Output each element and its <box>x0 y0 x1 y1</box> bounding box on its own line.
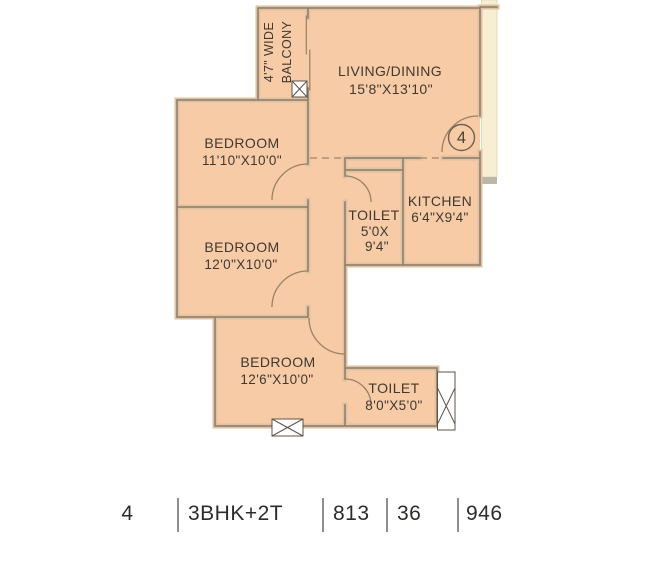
balcony-label-line1: 4'7" WIDE <box>262 22 276 82</box>
summary-unit-type: 3BHK+2T <box>188 494 283 534</box>
summary-value-2: 36 <box>397 494 421 534</box>
kitchen-label: KITCHEN <box>408 193 472 209</box>
summary-row: 4 3BHK+2T 813 36 946 <box>0 494 645 534</box>
bedroom-bottom-dims: 12'6"X10'0" <box>240 372 313 387</box>
summary-unit-number: 4 <box>105 494 150 534</box>
summary-divider <box>177 498 179 532</box>
summary-divider <box>386 498 388 532</box>
bedroom-top-label: BEDROOM <box>204 135 279 151</box>
bedroom-middle-dims: 12'0"X10'0" <box>204 257 277 272</box>
summary-divider <box>322 498 324 532</box>
bedroom-top-dims: 11'10"X10'0" <box>202 153 282 168</box>
kitchen-dims: 6'4"X9'4" <box>411 210 468 225</box>
balcony-label-line2: BALCONY <box>280 20 294 83</box>
bedroom-bottom-label: BEDROOM <box>240 354 315 370</box>
toilet-attached-label: TOILET <box>368 380 419 396</box>
toilet-common-dims-line1: 5'0X <box>361 224 389 239</box>
summary-value-3: 946 <box>466 494 503 534</box>
toilet-common-dims-line2: 9'4" <box>365 239 389 254</box>
summary-value-1: 813 <box>333 494 370 534</box>
adjacent-corridor-strip-cap <box>482 177 498 184</box>
adjacent-corridor-strip <box>482 0 498 177</box>
unit-number-label: 4 <box>457 129 466 147</box>
floor-plan: 4 4'7" WIDE BALCONY LIVING/DINING 15'8"X… <box>0 0 645 573</box>
toilet-common-label: TOILET <box>348 207 399 223</box>
floor-plan-page: 4 4'7" WIDE BALCONY LIVING/DINING 15'8"X… <box>0 0 645 573</box>
living-dining-label: LIVING/DINING <box>338 63 442 79</box>
toilet-attached-duct-icon <box>438 372 456 430</box>
toilet-attached-dims: 8'0"X5'0" <box>365 398 422 413</box>
living-dining-dims: 15'8"X13'10" <box>349 81 433 97</box>
bedroom-middle-label: BEDROOM <box>204 239 279 255</box>
summary-divider <box>457 498 459 532</box>
